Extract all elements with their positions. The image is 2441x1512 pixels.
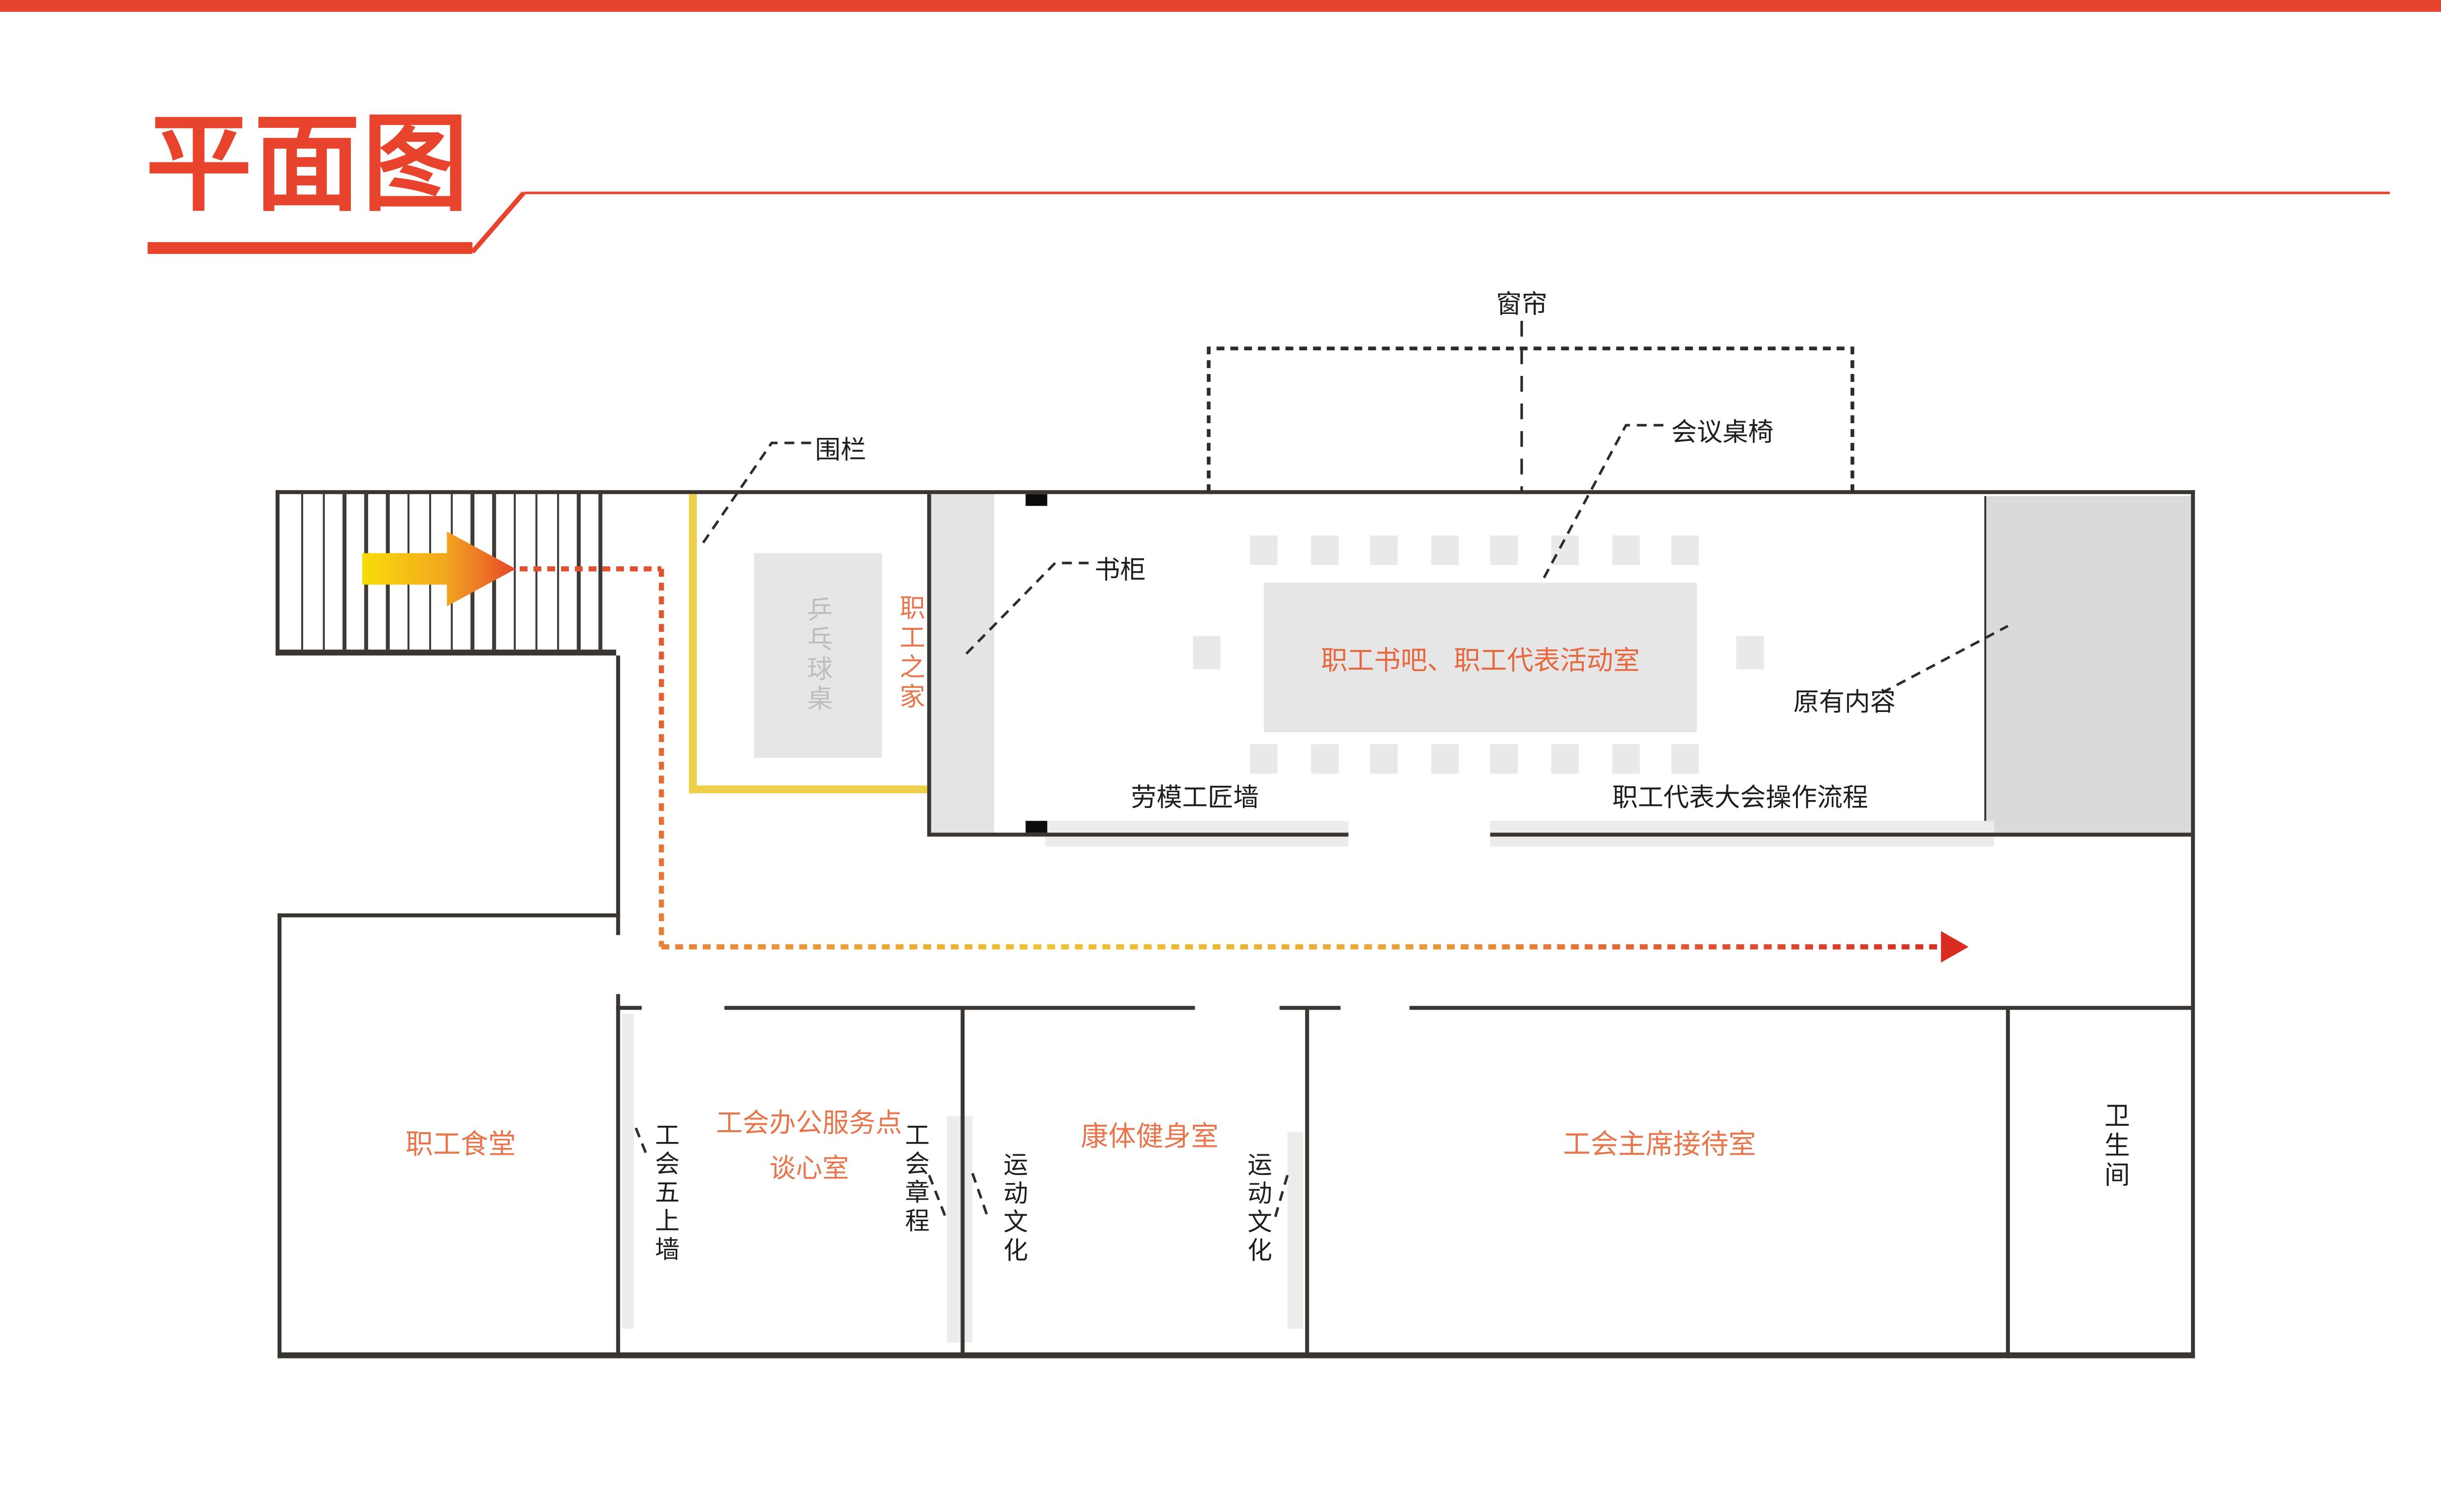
reception-label: 工会主席接待室 bbox=[1563, 1124, 1756, 1163]
union-five-label: 工会五上墙 bbox=[651, 1122, 676, 1265]
union-office-line2: 谈心室 bbox=[716, 1147, 902, 1193]
bookcase-label: 书柜 bbox=[1094, 549, 1145, 586]
meeting-furniture-label: 会议桌椅 bbox=[1671, 411, 1774, 449]
entry-arrow bbox=[362, 531, 516, 606]
fence-label: 围栏 bbox=[815, 429, 866, 466]
charter-leader bbox=[929, 1175, 947, 1220]
model-worker-wall-label: 劳模工匠墙 bbox=[1131, 776, 1259, 814]
floor-plan-slide: 平面图 乒乓球桌 职工书吧、职工代表活动室 bbox=[0, 0, 2441, 1512]
sports1-leader bbox=[972, 1173, 988, 1218]
union-five-leader bbox=[636, 1128, 648, 1157]
canteen-label: 职工食堂 bbox=[405, 1124, 516, 1163]
restroom-label: 卫生间 bbox=[2102, 1102, 2128, 1191]
sports2-label: 运动文化 bbox=[1244, 1151, 1269, 1265]
existing-content-leader bbox=[1882, 626, 2008, 693]
fitness-label: 康体健身室 bbox=[1081, 1116, 1218, 1155]
meeting-furniture-leader bbox=[1542, 425, 1664, 583]
sports1-label: 运动文化 bbox=[1000, 1151, 1024, 1265]
header-diagonal-line bbox=[472, 193, 524, 252]
diagram-overlay bbox=[0, 0, 2441, 1512]
charter-label: 工会章程 bbox=[901, 1122, 926, 1236]
existing-content-label: 原有内容 bbox=[1793, 681, 1896, 718]
staff-home-label: 职工之家 bbox=[897, 594, 923, 712]
fence-leader bbox=[703, 443, 811, 543]
union-office-line1: 工会办公服务点 bbox=[716, 1103, 902, 1148]
curtain-label: 窗帘 bbox=[1496, 283, 1547, 321]
route-arrowhead bbox=[1941, 931, 1969, 962]
congress-process-label: 职工代表大会操作流程 bbox=[1612, 776, 1868, 814]
bookcase-leader bbox=[964, 563, 1088, 655]
sports2-leader bbox=[1274, 1175, 1288, 1222]
union-office-label: 工会办公服务点 谈心室 bbox=[716, 1103, 902, 1193]
